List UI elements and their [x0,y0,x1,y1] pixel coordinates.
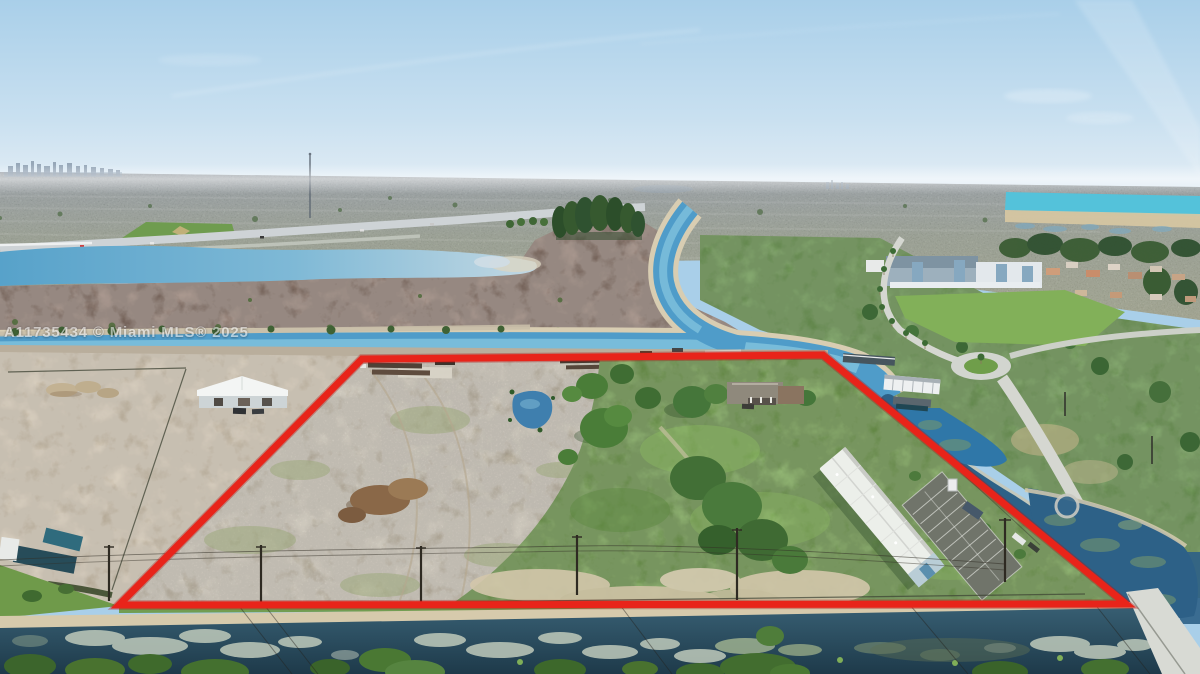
horizon-haze [0,164,1200,194]
weir-ring [1056,495,1078,517]
aerial-scene [0,0,1200,674]
cloud [1066,112,1134,124]
cloud [1004,89,1092,103]
aerial-property-photo: A11735434 © Miami MLS® 2025 [0,0,1200,674]
portable-toilet [948,479,957,491]
cloud [158,54,262,66]
roundabout [951,352,1011,380]
algae-patch [870,638,1030,662]
